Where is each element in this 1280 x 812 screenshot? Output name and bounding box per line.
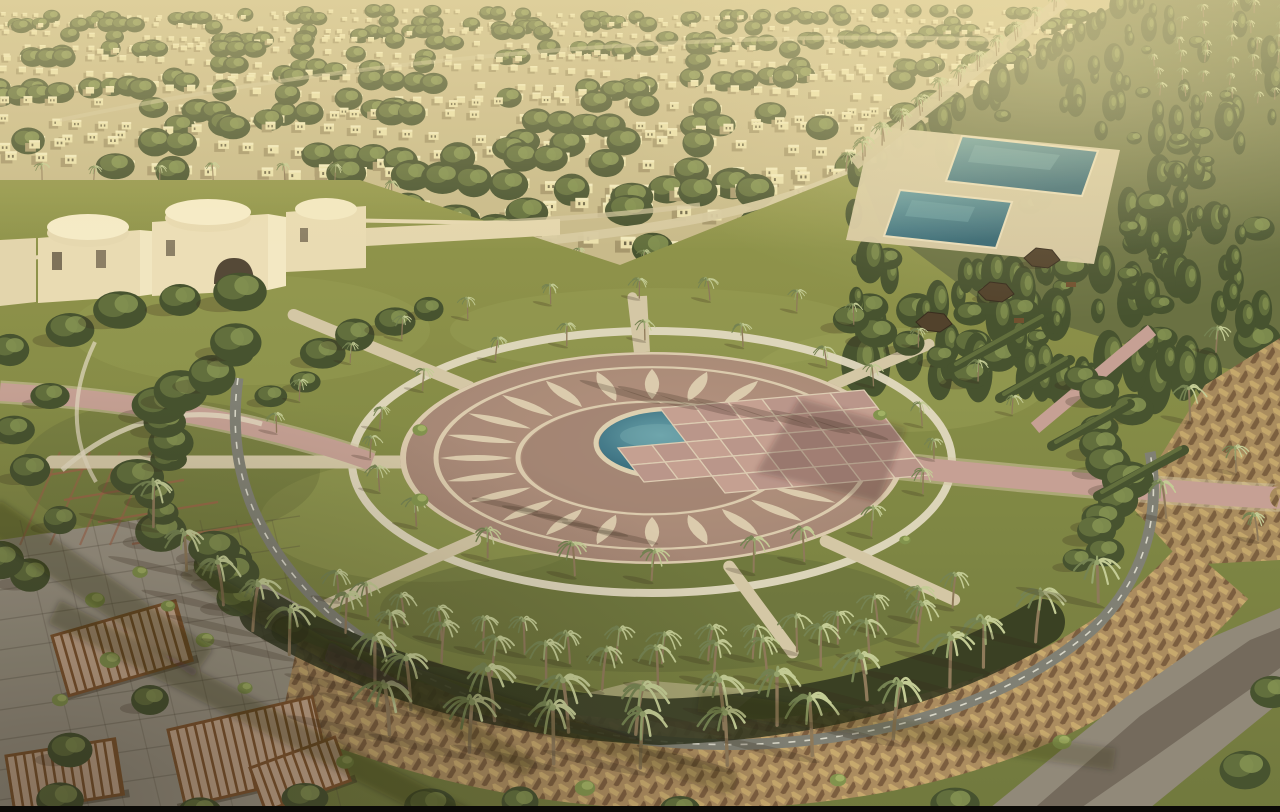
scene-canvas bbox=[0, 0, 1280, 812]
aerial-park-render bbox=[0, 0, 1280, 812]
letterbox-strip bbox=[0, 806, 1280, 812]
light-and-shadow-overlay bbox=[0, 0, 1280, 812]
